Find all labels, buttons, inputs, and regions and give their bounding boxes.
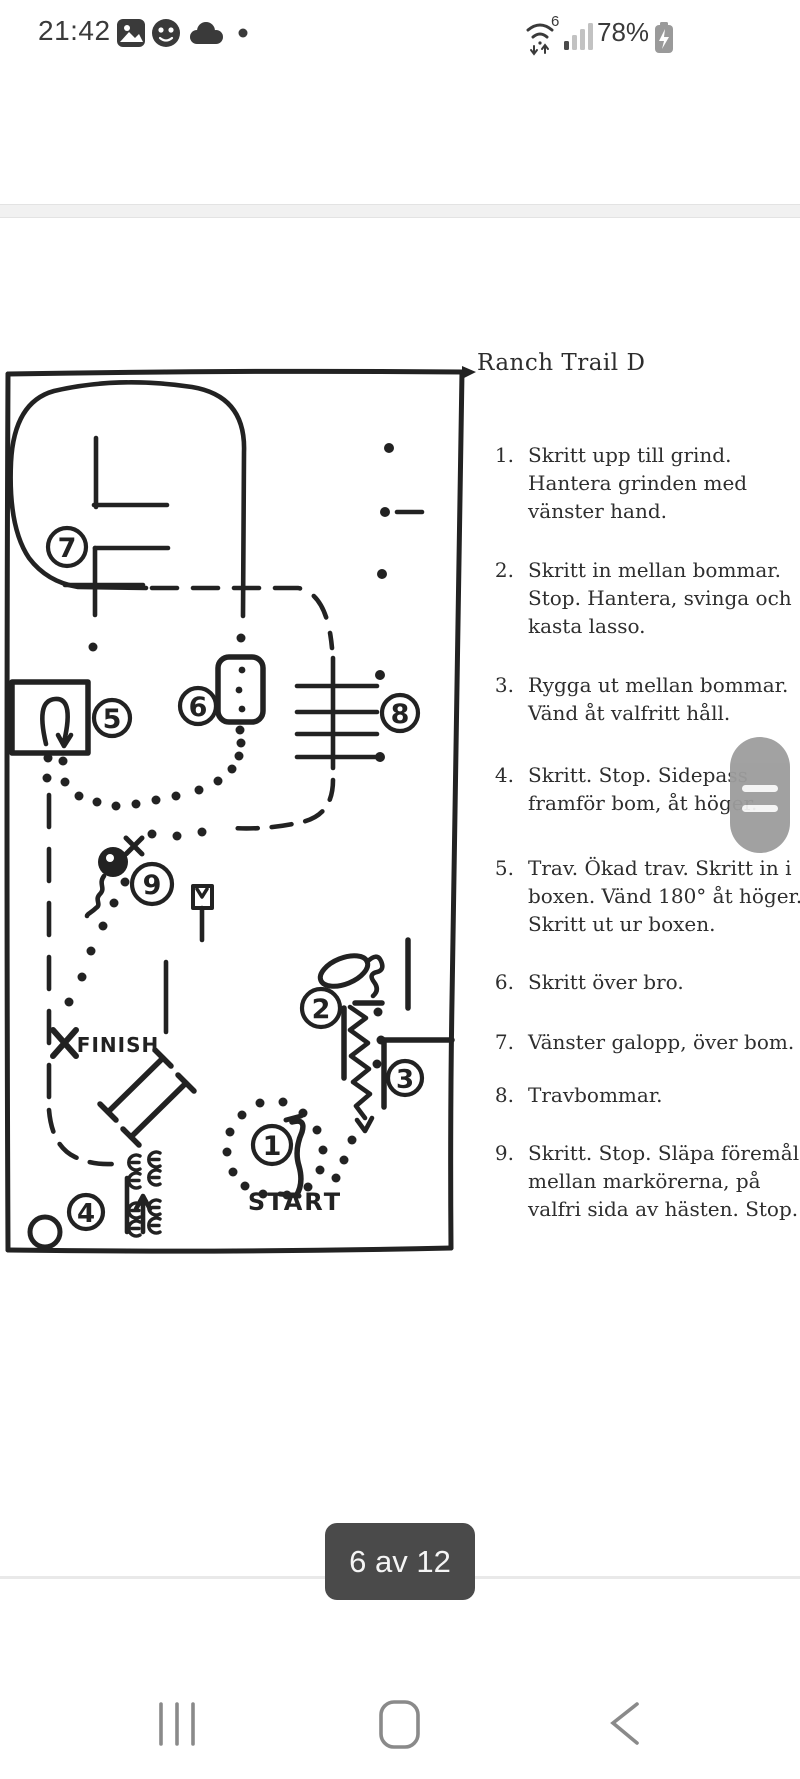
back-button[interactable] <box>613 1704 637 1743</box>
page-indicator: 6 av 12 <box>325 1523 475 1600</box>
nav-bar <box>0 0 800 1779</box>
recents-button[interactable] <box>161 1704 193 1744</box>
home-button[interactable] <box>381 1702 418 1747</box>
page-indicator-text: 6 av 12 <box>349 1544 451 1580</box>
